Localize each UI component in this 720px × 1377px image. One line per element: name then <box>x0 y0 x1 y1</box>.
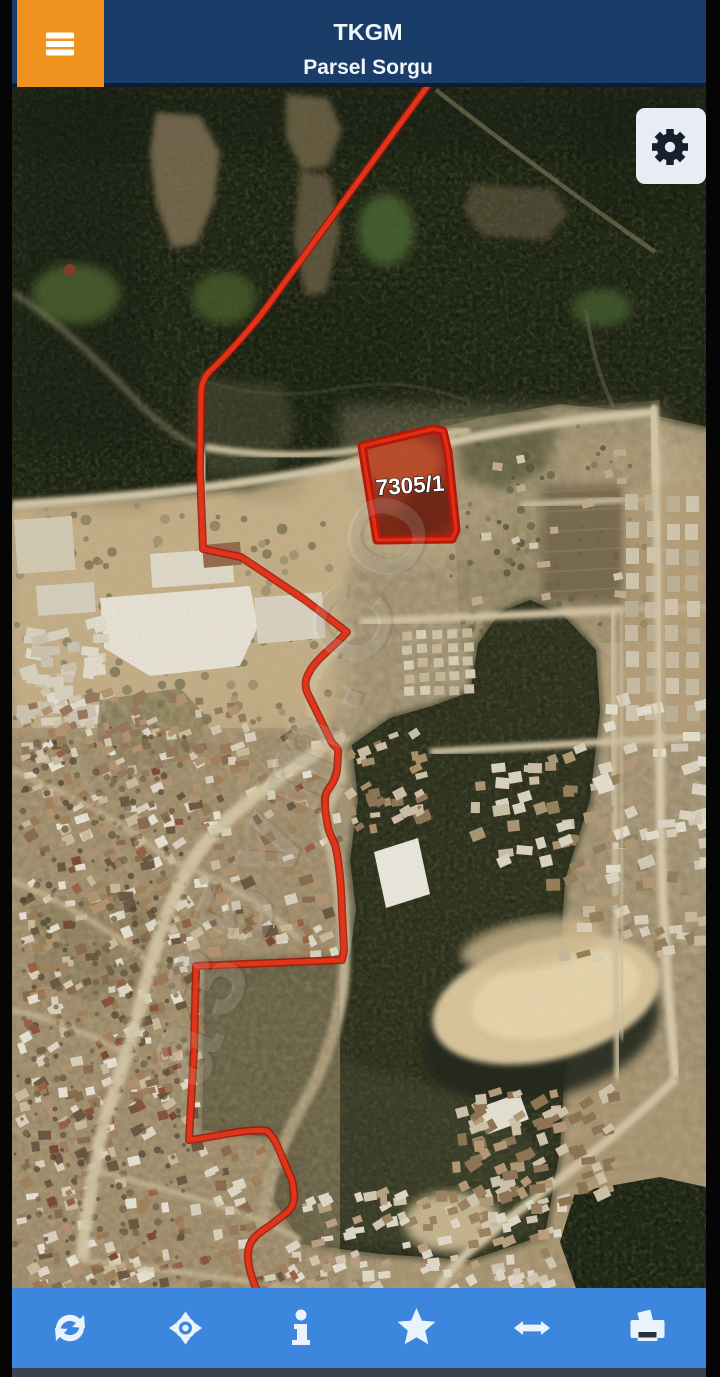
svg-text:Parsel Sorgu: Parsel Sorgu <box>303 56 433 79</box>
svg-text:TKGM: TKGM <box>333 19 402 45</box>
